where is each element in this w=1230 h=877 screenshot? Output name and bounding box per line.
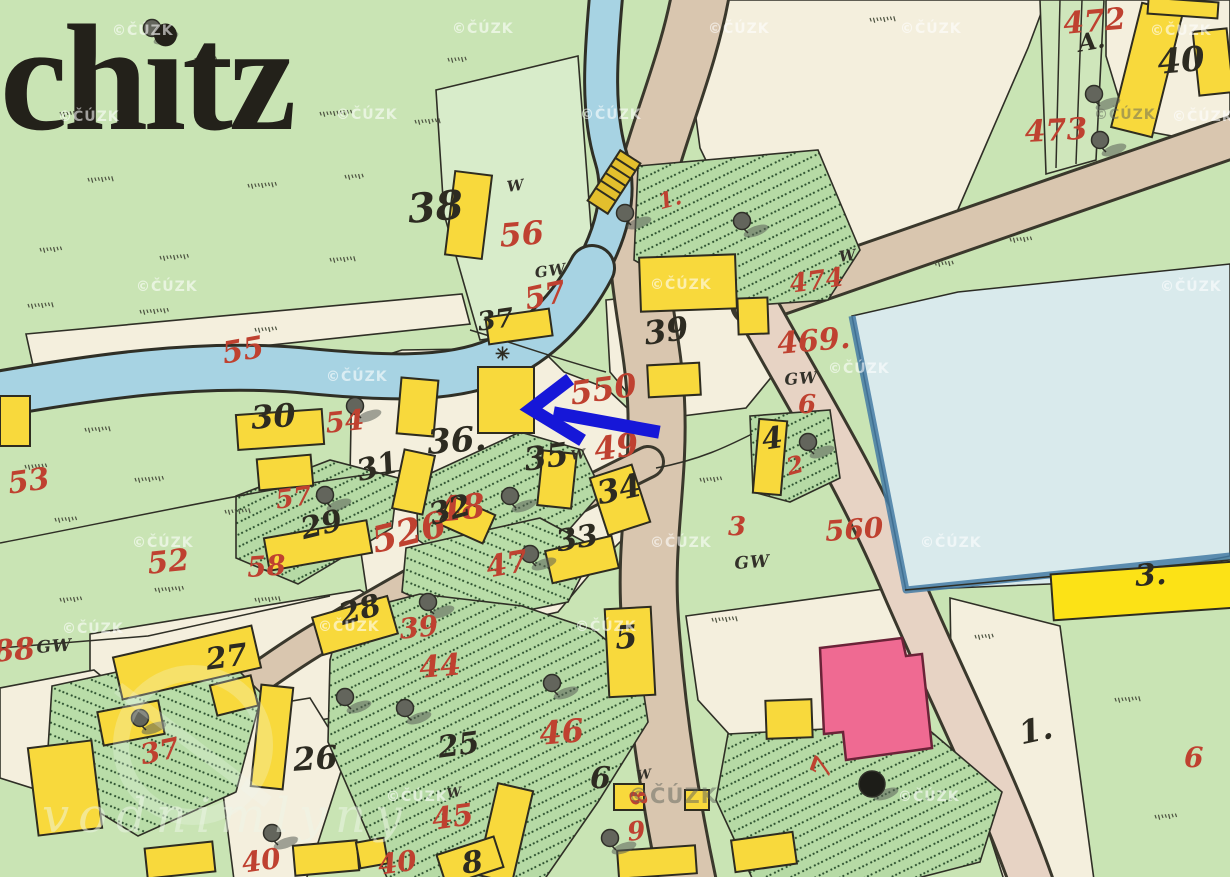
copyright-watermark: ©ČÚZK bbox=[452, 22, 514, 36]
house-number: 35 bbox=[522, 438, 571, 476]
house-number: 26 bbox=[292, 741, 339, 776]
building bbox=[0, 396, 30, 446]
gw-annotation: GW bbox=[734, 554, 771, 573]
gw-annotation: W bbox=[446, 786, 463, 801]
parcel-number-red: 56 bbox=[498, 216, 545, 252]
gw-annotation: W bbox=[636, 768, 653, 783]
copyright-watermark: ©ČÚZK bbox=[580, 108, 642, 122]
house-number: 40 bbox=[1156, 42, 1206, 80]
parcel-number-red: 47 bbox=[484, 547, 530, 584]
house-number: 6 bbox=[590, 764, 611, 794]
copyright-watermark: ©ČÚZK bbox=[1172, 110, 1230, 124]
gw-annotation: GW bbox=[784, 370, 819, 388]
copyright-watermark: ©ČÚZK bbox=[628, 786, 718, 807]
gw-annotation: W bbox=[570, 448, 587, 463]
parcel-number-red: 6 bbox=[798, 392, 816, 418]
parcel-number-red: 474 bbox=[788, 264, 845, 297]
parcel-number-red: 53 bbox=[6, 464, 52, 500]
parcel-number-red: 45 bbox=[430, 800, 476, 836]
parcel-number-red: 88 bbox=[0, 634, 36, 668]
house-number: 3. bbox=[1134, 560, 1167, 592]
house-number: 34 bbox=[594, 469, 644, 510]
building bbox=[765, 699, 812, 739]
copyright-watermark: ©ČÚZK bbox=[708, 22, 770, 36]
gw-annotation: GW bbox=[36, 638, 73, 657]
map-canvas: chitz 472473474469.61.565755545504948475… bbox=[0, 0, 1230, 877]
building bbox=[145, 842, 216, 877]
landmark-star-icon: ✳ bbox=[495, 346, 510, 364]
pond bbox=[852, 264, 1230, 590]
copyright-watermark: ©ČÚZK bbox=[650, 278, 712, 292]
copyright-watermark: ©ČÚZK bbox=[650, 536, 712, 550]
parcel-number-red: 46 bbox=[538, 714, 585, 750]
house-number: 39 bbox=[642, 312, 691, 350]
parcel-number-red: 37 bbox=[138, 734, 182, 769]
parcel-number-red: 560 bbox=[824, 514, 884, 546]
house-number: 38 bbox=[406, 185, 465, 230]
copyright-watermark: ©ČÚZK bbox=[62, 622, 124, 636]
parcel-number-red: 39 bbox=[398, 612, 440, 644]
gw-annotation: W bbox=[506, 178, 526, 195]
copyright-watermark: ©ČÚZK bbox=[336, 108, 398, 122]
parcel-number-red: 6 bbox=[1184, 744, 1203, 772]
parcel-number-red: 9 bbox=[626, 818, 647, 846]
house-number: 27 bbox=[204, 640, 250, 676]
house-number: 8 bbox=[460, 847, 485, 877]
house-number: A. bbox=[1076, 27, 1107, 55]
house-number: 4 bbox=[760, 423, 785, 456]
parcel-number-red: 550 bbox=[568, 369, 639, 410]
copyright-watermark: ©ČÚZK bbox=[318, 620, 380, 634]
parcel-number-red: 469. bbox=[776, 324, 851, 360]
copyright-watermark: ©ČÚZK bbox=[132, 536, 194, 550]
copyright-watermark: ©ČÚZK bbox=[575, 620, 637, 634]
copyright-watermark: ©ČÚZK bbox=[828, 362, 890, 376]
copyright-watermark: ©ČÚZK bbox=[1160, 280, 1222, 294]
parcel-number-red: 57 bbox=[522, 277, 569, 315]
copyright-watermark: ©ČÚZK bbox=[58, 110, 120, 124]
parcel-number-red: 57 bbox=[274, 483, 313, 514]
copyright-watermark: ©ČÚZK bbox=[112, 24, 174, 38]
big-watermark: vodnimlyny bbox=[42, 788, 411, 844]
gw-annotation: W bbox=[838, 248, 858, 265]
parcel-number-red: 40 bbox=[376, 847, 418, 877]
copyright-watermark: ©ČÚZK bbox=[920, 536, 982, 550]
parcel-number-red: 58 bbox=[246, 551, 287, 582]
parcel-number-red: 55 bbox=[220, 333, 266, 370]
parcel-number-red: 49 bbox=[592, 428, 641, 466]
gw-annotation: GW bbox=[534, 262, 567, 281]
parcel-number-red: 54 bbox=[324, 406, 366, 438]
house-number: 37 bbox=[476, 305, 515, 336]
house-number: 33 bbox=[554, 521, 600, 558]
house-number: 30 bbox=[250, 399, 297, 434]
copyright-watermark: ©ČÚZK bbox=[900, 22, 962, 36]
building bbox=[293, 840, 359, 875]
copyright-watermark: ©ČÚZK bbox=[898, 790, 960, 804]
parcel-number-red: 473 bbox=[1024, 115, 1088, 148]
building bbox=[737, 297, 768, 334]
house-number: 25 bbox=[436, 728, 482, 764]
copyright-watermark: ©ČÚZK bbox=[1094, 108, 1156, 122]
house-number: 36. bbox=[426, 422, 487, 460]
house-number: 1. bbox=[1016, 711, 1055, 749]
copyright-watermark: ©ČÚZK bbox=[136, 280, 198, 294]
parcel-number-red: 40 bbox=[240, 845, 282, 877]
building bbox=[478, 367, 534, 433]
building bbox=[647, 363, 701, 398]
copyright-watermark: ©ČÚZK bbox=[326, 370, 388, 384]
parcel-number-red: 3 bbox=[728, 514, 746, 540]
parcel-number-red: 44 bbox=[418, 650, 462, 684]
copyright-watermark: ©ČÚZK bbox=[1150, 24, 1212, 38]
